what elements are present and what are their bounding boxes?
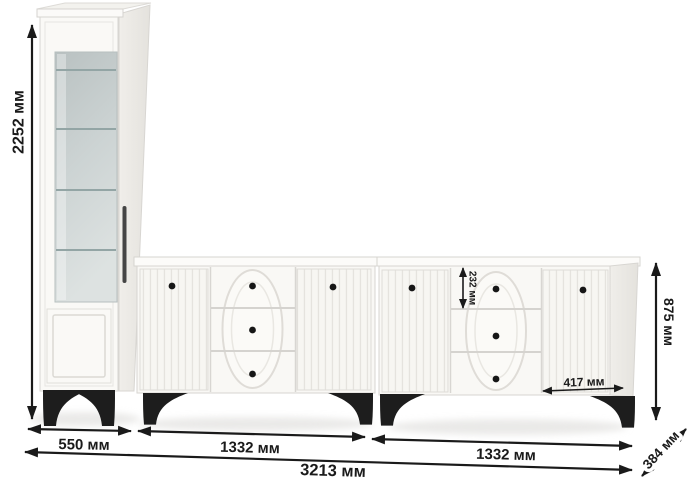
- furniture-leg: [380, 394, 425, 426]
- dim-label-cabinet-height: 2252 мм: [11, 90, 28, 154]
- sideboard-top-slab: [377, 257, 640, 266]
- dim-line-sideboard-left-width: [138, 431, 365, 437]
- dim-label-sideboard-right-width: 1332 мм: [476, 446, 536, 465]
- dim-label-cabinet-width: 550 мм: [58, 436, 110, 454]
- dim-label-sideboard-height: 875 мм: [661, 298, 677, 346]
- sideboard-right: [377, 257, 640, 428]
- drawer-knob: [493, 333, 500, 340]
- drawer-knob: [249, 327, 256, 334]
- floor-shadow: [138, 417, 374, 431]
- dim-label-total-width: 3213 мм: [300, 461, 366, 481]
- dim-label-top-drawer-height: 232 мм: [467, 271, 478, 305]
- furniture-dimension-diagram: 2252 мм 550 мм 1332 мм 1332 мм 3213 мм 8…: [0, 0, 700, 482]
- floor-shadow: [388, 419, 628, 435]
- cabinet-lower-panel: [47, 309, 111, 383]
- sideboard-side-panel: [610, 263, 638, 397]
- sideboard-left: [134, 257, 377, 425]
- dim-label-depth: 384 мм: [640, 428, 683, 472]
- door-knob: [169, 283, 176, 290]
- door-knob: [409, 285, 416, 292]
- door-knob: [330, 284, 337, 291]
- drawer-knob: [249, 283, 256, 290]
- display-cabinet: [37, 3, 151, 426]
- drawer-knob: [249, 371, 256, 378]
- door-knob: [580, 287, 587, 294]
- sideboard-top-slab: [134, 257, 377, 266]
- cabinet-top-face: [37, 3, 151, 9]
- dim-line-sideboard-right-width: [372, 439, 632, 446]
- drawer-knob: [493, 286, 500, 293]
- glass-reflection: [57, 54, 66, 300]
- dim-label-sideboard-left-width: 1332 мм: [220, 439, 280, 458]
- door-handle: [123, 206, 127, 283]
- dim-line-cabinet-width: [28, 429, 131, 431]
- drawer-knob: [493, 376, 500, 383]
- cabinet-cornice: [37, 9, 123, 17]
- dim-label-right-door-width: 417 мм: [563, 374, 605, 389]
